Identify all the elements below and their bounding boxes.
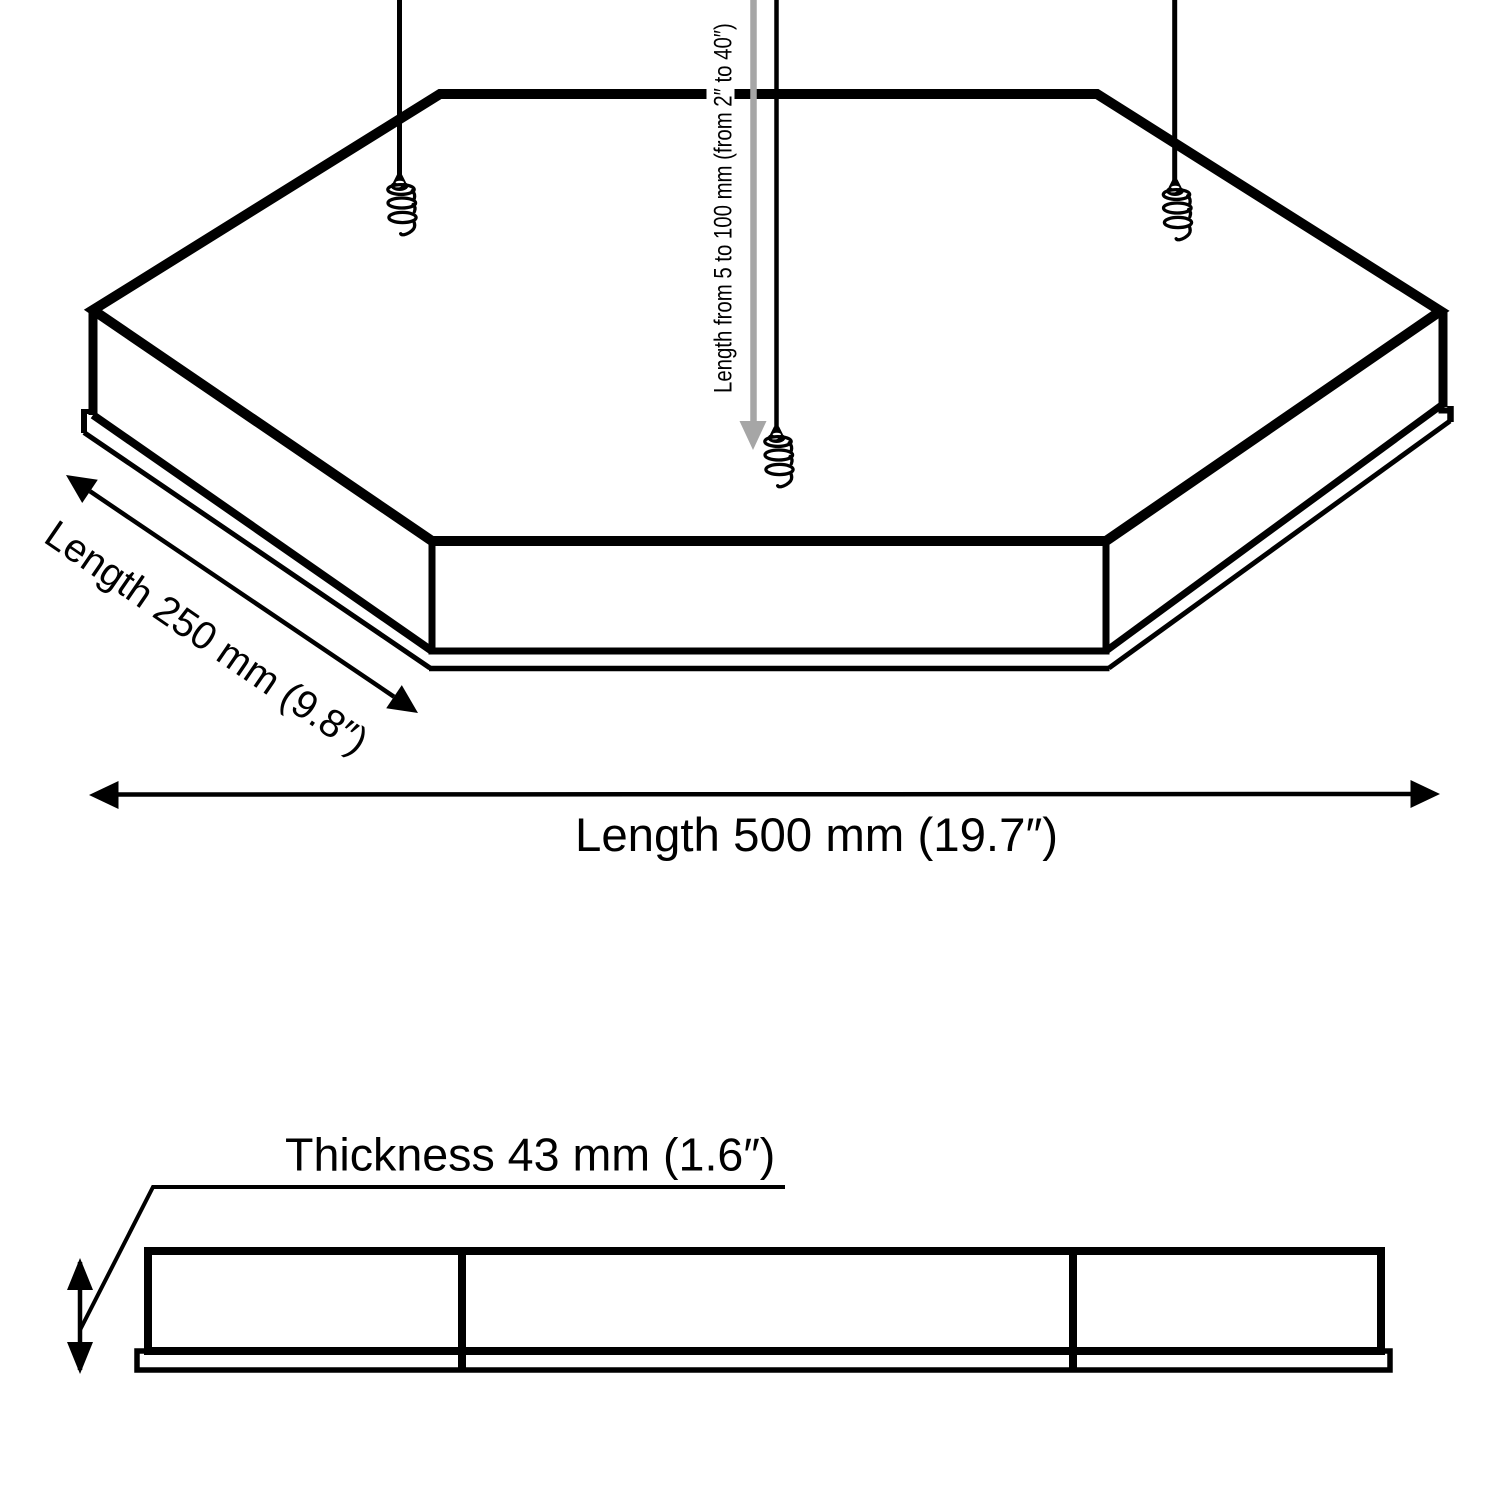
svg-text:Thickness 43 mm (1.6″): Thickness 43 mm (1.6″) bbox=[285, 1129, 775, 1181]
svg-text:Length from 5 to 100 mm (from: Length from 5 to 100 mm (from 2″ to 40″) bbox=[708, 23, 737, 393]
svg-text:Length 500 mm (19.7″): Length 500 mm (19.7″) bbox=[575, 809, 1058, 862]
